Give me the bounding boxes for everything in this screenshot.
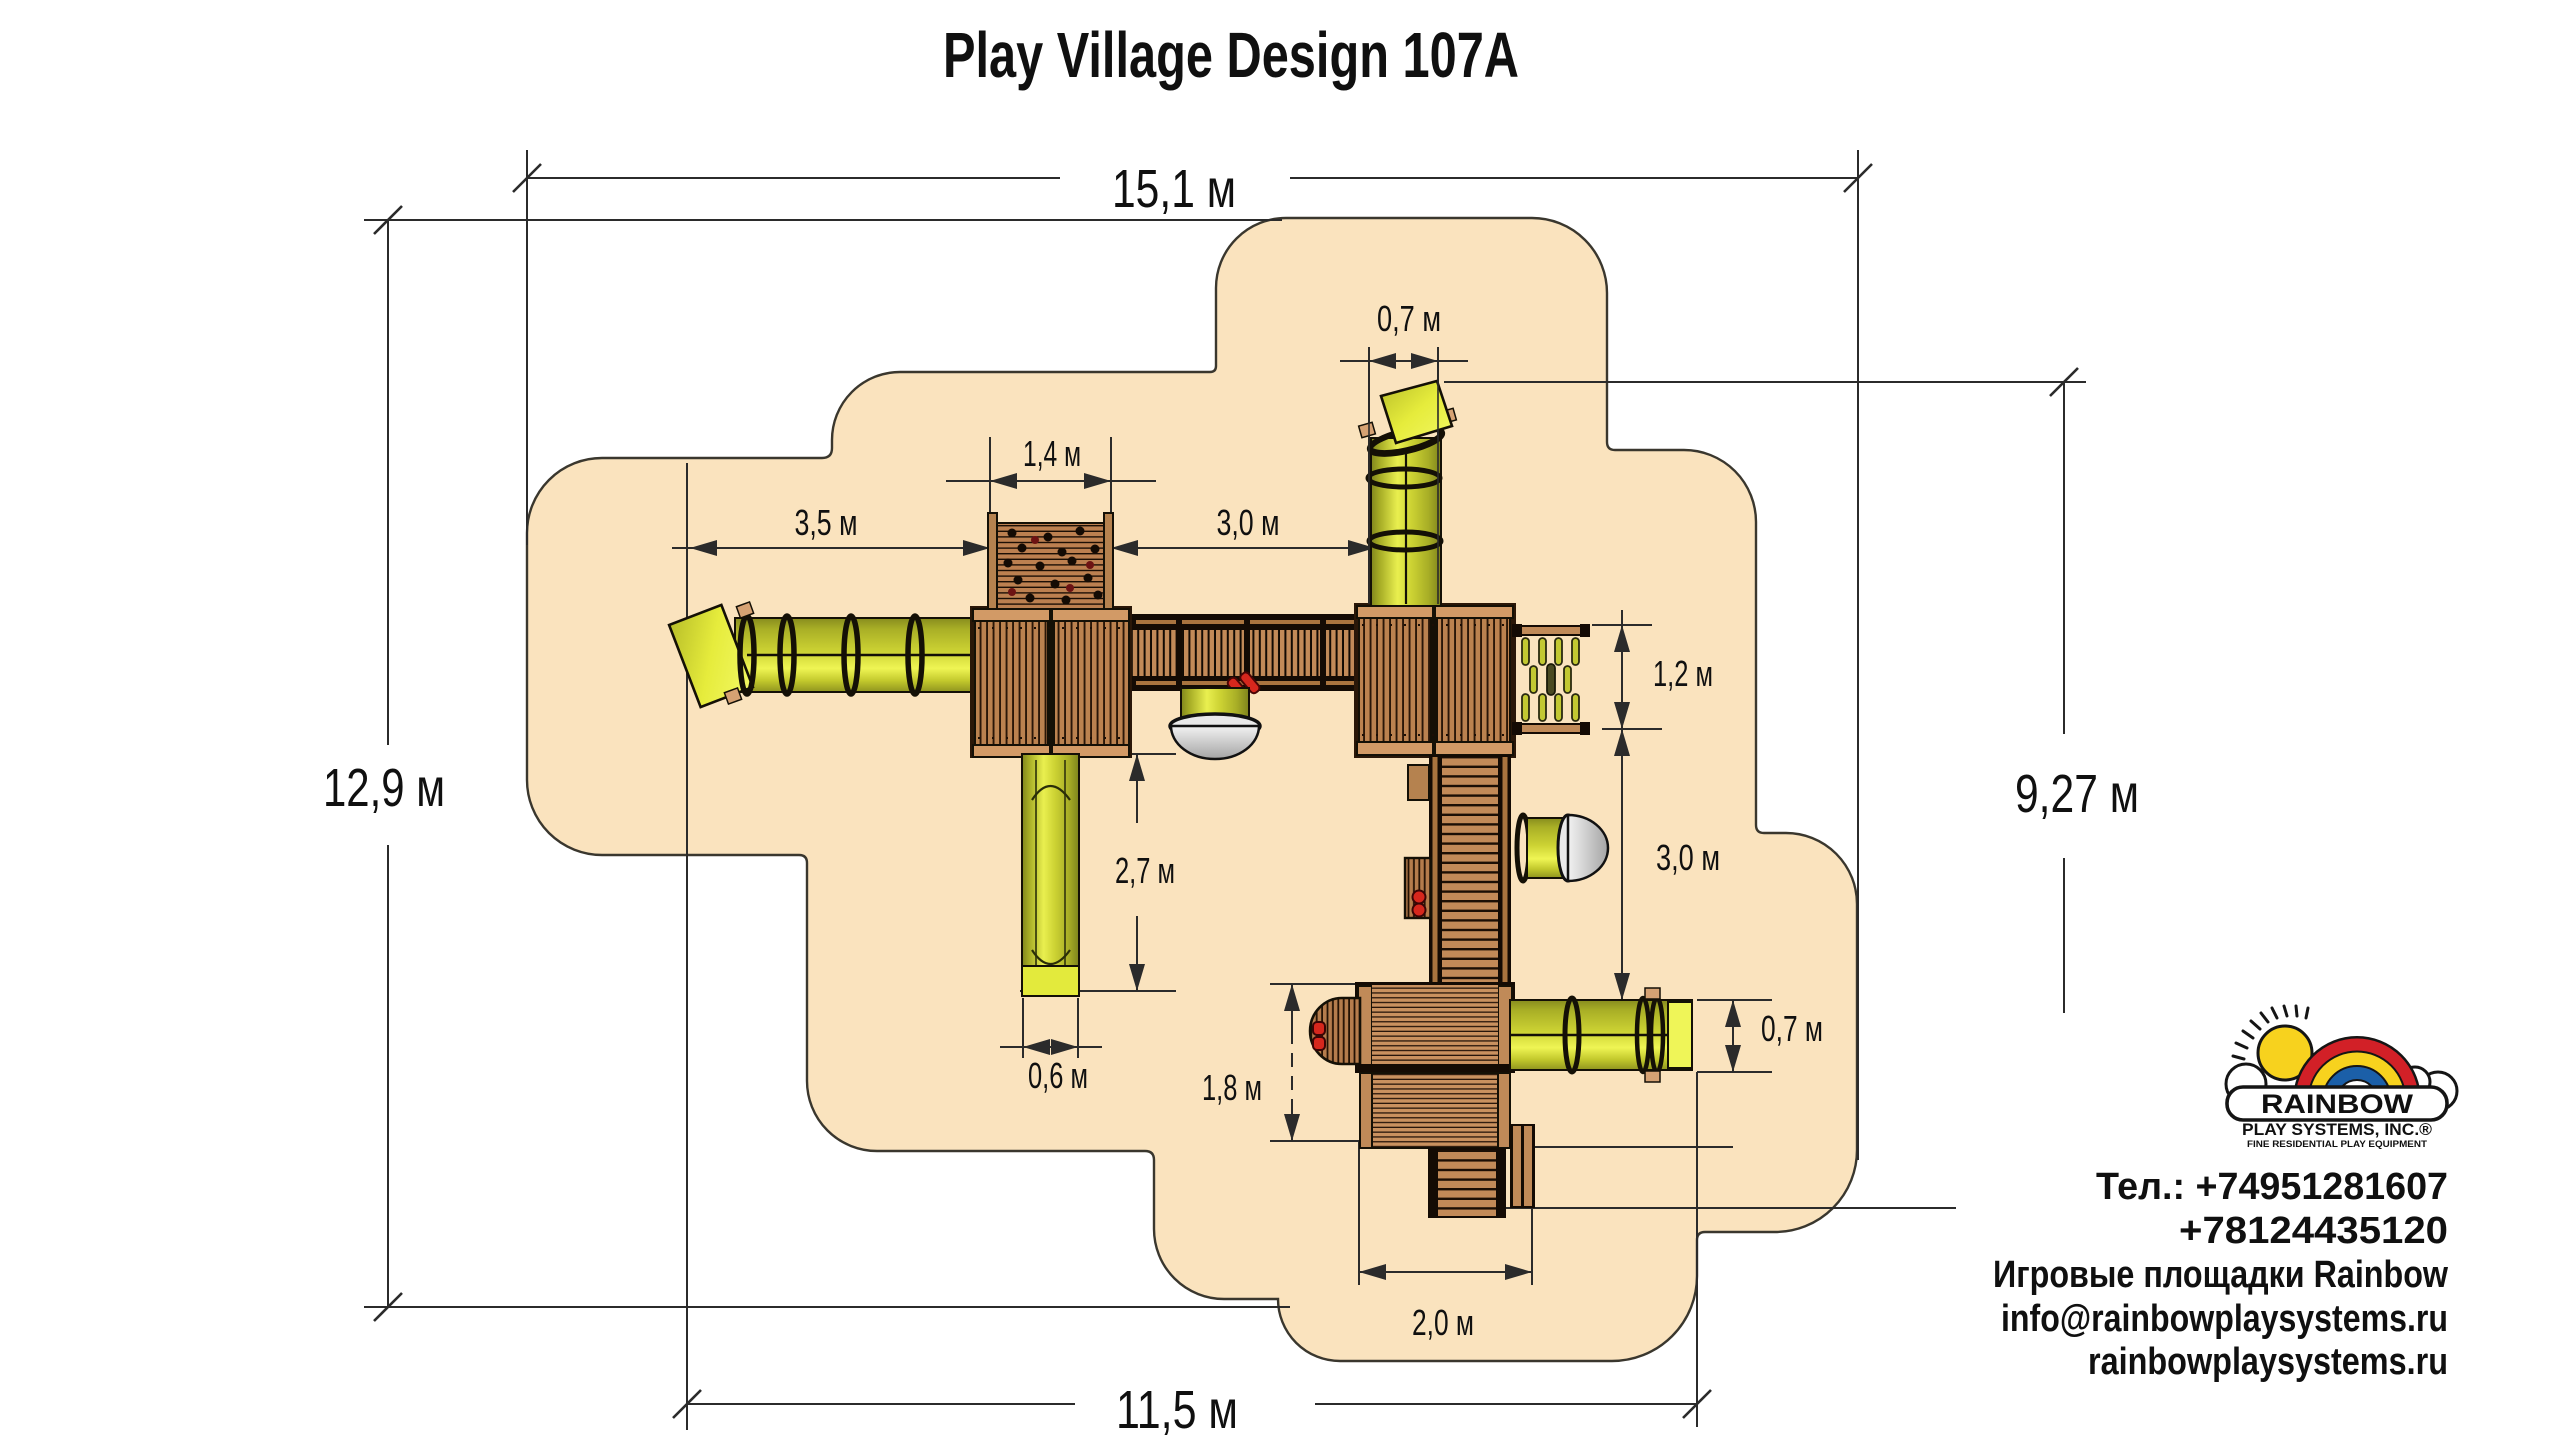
svg-text:1,4 м: 1,4 м <box>1023 433 1081 474</box>
svg-text:PLAY SYSTEMS, INC.®: PLAY SYSTEMS, INC.® <box>2242 1120 2432 1139</box>
svg-text:0,7 м: 0,7 м <box>1761 1008 1823 1049</box>
svg-text:2,7 м: 2,7 м <box>1115 850 1175 891</box>
svg-text:Play Village Design 107A: Play Village Design 107A <box>943 19 1519 91</box>
svg-text:info@rainbowplaysystems.ru: info@rainbowplaysystems.ru <box>2001 1298 2448 1340</box>
svg-text:Игровые площадки Rainbow: Игровые площадки Rainbow <box>1993 1254 2448 1296</box>
svg-text:1,2 м: 1,2 м <box>1653 653 1713 694</box>
svg-text:FINE RESIDENTIAL PLAY EQUIPMEN: FINE RESIDENTIAL PLAY EQUIPMENT <box>2247 1139 2427 1150</box>
svg-text:Тел.: +74951281607: Тел.: +74951281607 <box>2096 1166 2448 1208</box>
svg-text:rainbowplaysystems.ru: rainbowplaysystems.ru <box>2088 1341 2448 1383</box>
svg-text:+78124435120: +78124435120 <box>2179 1210 2448 1252</box>
svg-text:2,0 м: 2,0 м <box>1412 1302 1474 1343</box>
svg-text:RAINBOW: RAINBOW <box>2261 1089 2414 1119</box>
svg-text:9,27 м: 9,27 м <box>2015 764 2139 824</box>
svg-text:0,7 м: 0,7 м <box>1377 298 1441 339</box>
svg-text:3,5 м: 3,5 м <box>795 502 858 543</box>
svg-text:1,8 м: 1,8 м <box>1202 1067 1262 1108</box>
svg-text:3,0 м: 3,0 м <box>1656 837 1720 878</box>
svg-text:12,9 м: 12,9 м <box>323 758 445 818</box>
svg-text:0,6 м: 0,6 м <box>1028 1055 1088 1096</box>
svg-text:3,0 м: 3,0 м <box>1217 502 1280 543</box>
svg-text:15,1 м: 15,1 м <box>1112 159 1236 219</box>
svg-text:11,5 м: 11,5 м <box>1116 1380 1238 1440</box>
